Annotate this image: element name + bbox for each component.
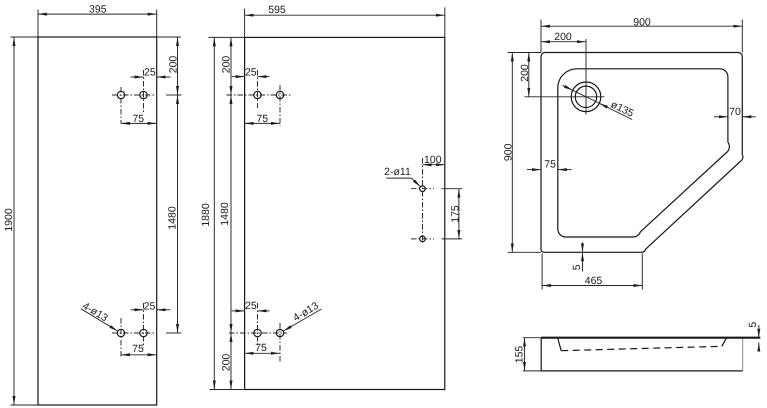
svg-text:595: 595: [268, 4, 286, 16]
svg-text:395: 395: [89, 4, 107, 16]
svg-text:175: 175: [450, 205, 462, 223]
svg-text:4-ø13: 4-ø13: [80, 300, 110, 324]
svg-text:4-ø13: 4-ø13: [291, 300, 321, 324]
svg-text:75: 75: [255, 342, 267, 354]
svg-text:200: 200: [168, 56, 180, 74]
svg-text:25: 25: [245, 67, 257, 79]
svg-text:25: 25: [245, 300, 257, 312]
svg-text:1480: 1480: [166, 206, 178, 230]
svg-text:75: 75: [544, 159, 556, 171]
svg-text:1880: 1880: [200, 203, 212, 227]
svg-text:70: 70: [729, 106, 741, 118]
svg-text:900: 900: [633, 16, 651, 28]
svg-text:ø135: ø135: [609, 98, 636, 119]
svg-text:465: 465: [585, 275, 603, 287]
svg-text:900: 900: [503, 143, 515, 161]
svg-text:155: 155: [514, 346, 526, 364]
svg-text:5: 5: [747, 322, 759, 328]
svg-text:200: 200: [221, 354, 233, 372]
svg-text:5: 5: [571, 264, 583, 270]
svg-text:2-ø11: 2-ø11: [384, 166, 411, 178]
svg-text:100: 100: [424, 154, 442, 166]
svg-text:75: 75: [256, 113, 268, 125]
svg-text:75: 75: [132, 343, 144, 355]
svg-text:1480: 1480: [219, 202, 231, 226]
svg-text:200: 200: [221, 56, 233, 74]
svg-text:200: 200: [519, 64, 531, 82]
svg-text:25: 25: [144, 66, 156, 78]
svg-text:25: 25: [144, 301, 156, 313]
svg-text:75: 75: [132, 113, 144, 125]
svg-text:1900: 1900: [3, 208, 15, 232]
svg-text:200: 200: [554, 31, 572, 43]
